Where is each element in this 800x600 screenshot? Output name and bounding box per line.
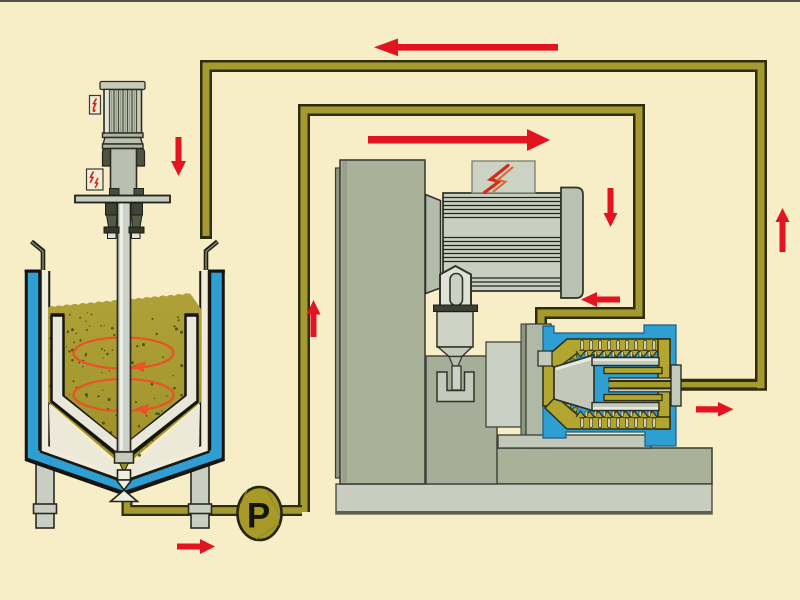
svg-text:P: P — [247, 497, 270, 536]
